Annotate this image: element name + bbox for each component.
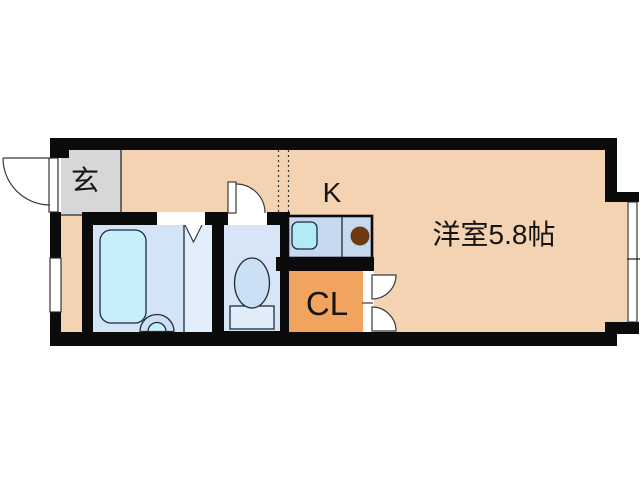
bathroom-floor-light <box>184 225 212 332</box>
floorplan-svg: 玄 K 洋室5.8帖 CL <box>0 0 640 480</box>
entrance-doorway <box>49 158 58 212</box>
wall-entrance-corner <box>50 148 69 158</box>
wall-right-upper <box>605 138 617 192</box>
window-bay-floor <box>605 202 627 322</box>
window-right <box>628 202 637 322</box>
wall-window-step-top <box>605 192 639 202</box>
wall-top <box>50 138 617 150</box>
bathtub <box>100 230 146 323</box>
window-left <box>50 258 61 312</box>
toilet-door-leaf <box>228 182 236 213</box>
closet-label: CL <box>306 285 348 322</box>
kitchen-sink <box>292 222 317 249</box>
main-room-label: 洋室5.8帖 <box>433 219 556 250</box>
toilet-bowl <box>235 258 270 308</box>
wall-window-step-bottom <box>605 322 639 334</box>
entrance-label: 玄 <box>71 165 99 196</box>
wall-bottom <box>50 332 617 346</box>
wall-left-middle <box>50 212 61 258</box>
toilet-tank <box>230 306 274 329</box>
stove-burner <box>351 227 370 246</box>
bathroom-doorway <box>157 212 205 225</box>
kitchen-label: K <box>323 177 342 208</box>
toilet-doorway <box>228 212 267 225</box>
floorplan-page: 玄 K 洋室5.8帖 CL <box>0 0 640 480</box>
